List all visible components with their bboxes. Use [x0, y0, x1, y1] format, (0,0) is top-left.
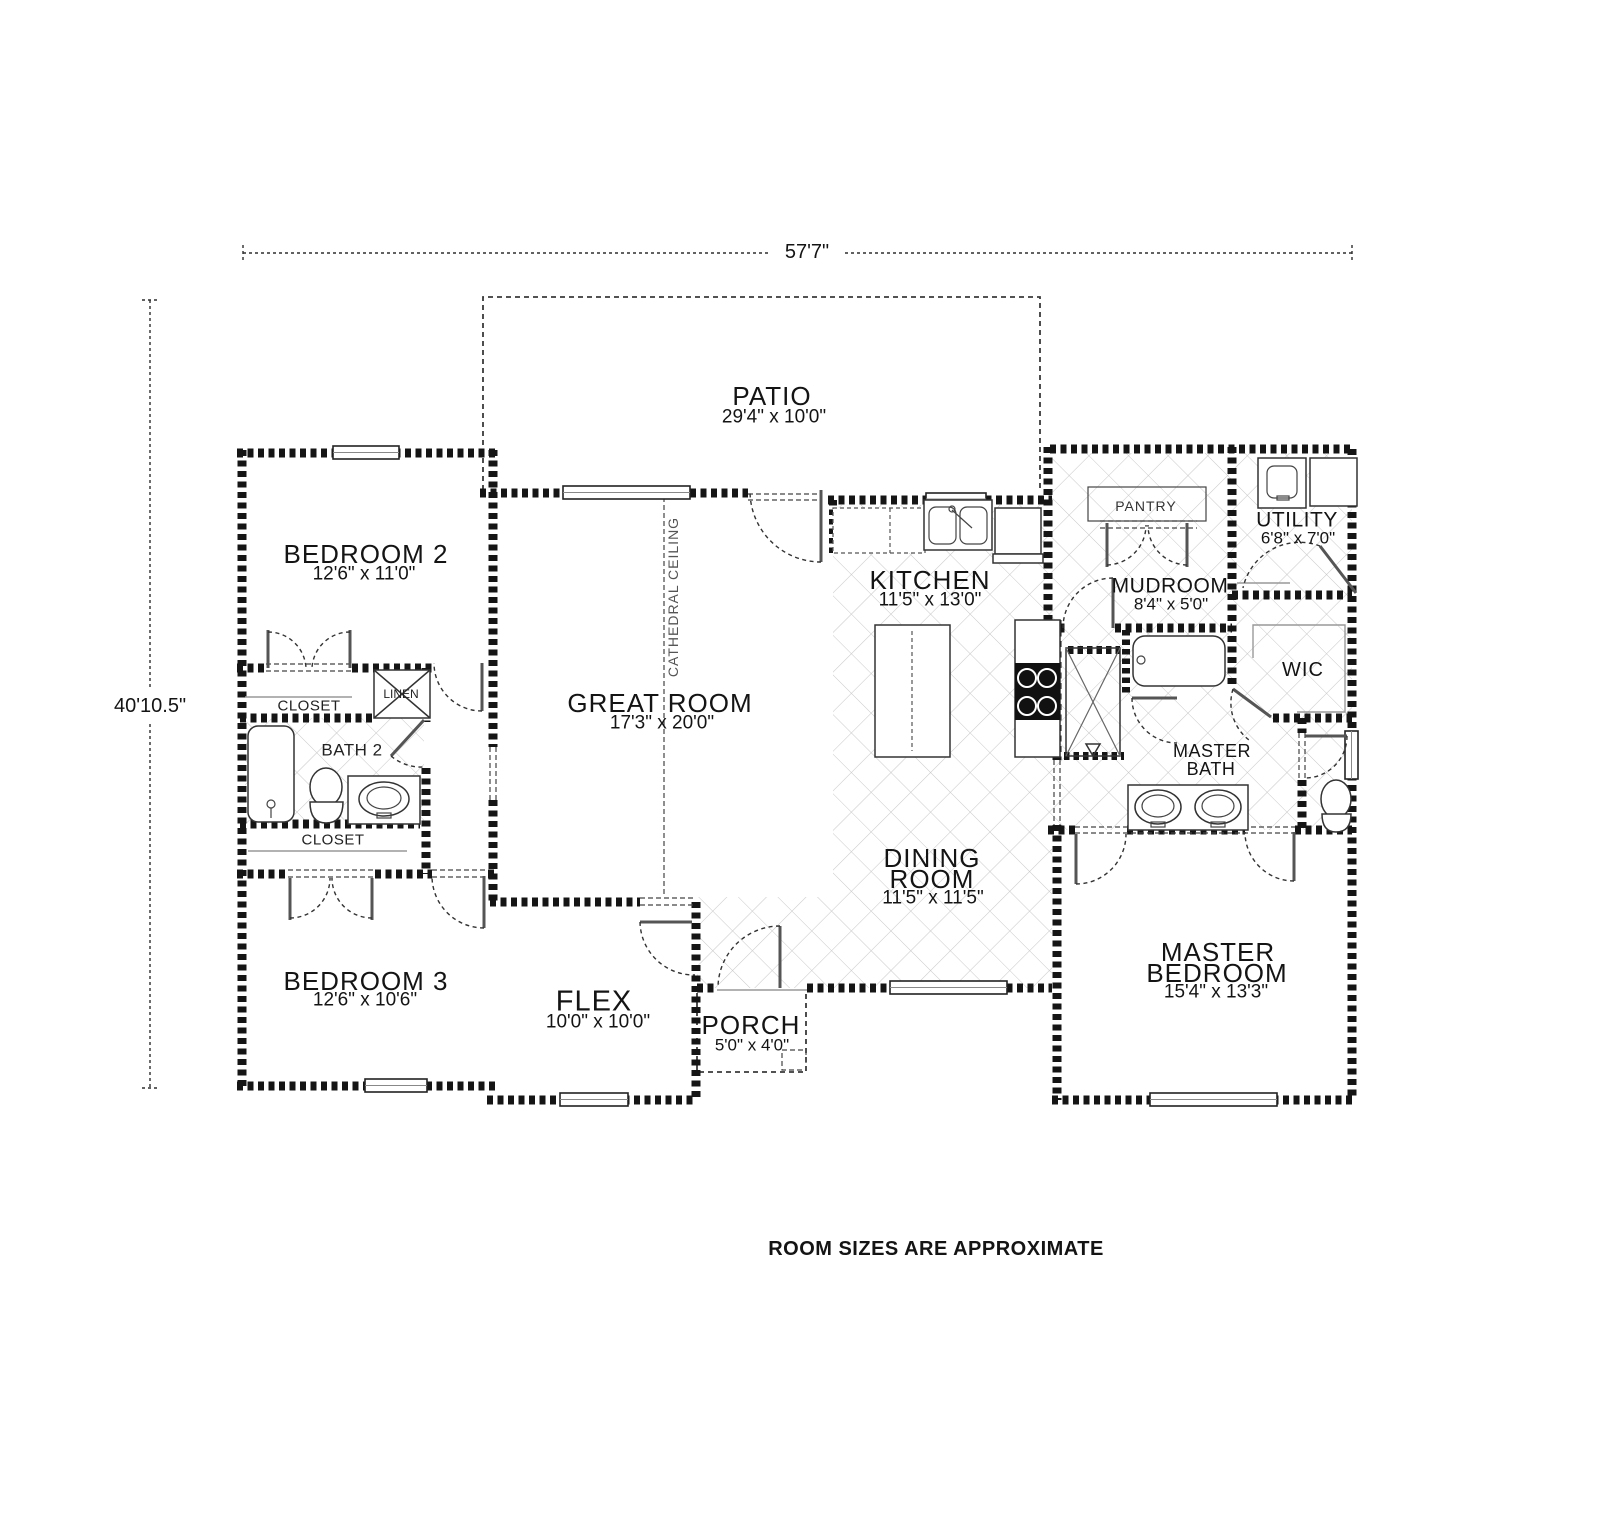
toilet: [310, 768, 342, 806]
cathedral-ceiling-label: CATHEDRAL CEILING: [666, 517, 680, 677]
master-bedroom-size: 15'4" x 13'3": [1164, 983, 1268, 1002]
door: [434, 663, 482, 711]
door: [1245, 832, 1294, 881]
mudroom-label: MUDROOM: [1112, 576, 1229, 597]
door: [1076, 834, 1126, 884]
window: [890, 981, 1007, 994]
floor-plan: 57'7" 40'10.5" PATIO 29'4" x 10'0" BEDRO…: [0, 0, 1600, 1516]
porch-size: 5'0" x 4'0": [715, 1037, 789, 1054]
overall-height-dimension: 40'10.5": [109, 696, 191, 716]
bedroom2-size: 12'6" x 11'0": [313, 565, 416, 584]
patio-size: 29'4" x 10'0": [722, 408, 826, 427]
great-room-size: 17'3" x 20'0": [610, 714, 714, 733]
utility-label: UTILITY: [1256, 510, 1338, 531]
master-bath-label-2: BATH: [1187, 760, 1236, 778]
door: [750, 490, 821, 562]
kitchen-size: 11'5" x 13'0": [879, 591, 982, 610]
flex-size: 10'0" x 10'0": [546, 1013, 650, 1032]
bedroom3-closet-label: CLOSET: [301, 833, 364, 848]
window: [365, 1079, 427, 1092]
bedroom2-closet-label: CLOSET: [277, 699, 340, 714]
pantry-label: PANTRY: [1115, 499, 1177, 513]
wic-label: WIC: [1282, 660, 1324, 680]
linen-label: LINEN: [383, 688, 418, 700]
door: [640, 922, 695, 975]
toilet: [1321, 780, 1351, 818]
door: [290, 878, 372, 920]
master-bath-label-1: MASTER: [1173, 742, 1251, 760]
mudroom-size: 8'4" x 5'0": [1134, 596, 1208, 613]
window: [1150, 1093, 1277, 1106]
plan-note: ROOM SIZES ARE APPROXIMATE: [768, 1239, 1104, 1259]
door: [432, 876, 484, 928]
patio-label: PATIO: [732, 383, 811, 409]
bedroom3-size: 12'6" x 10'6": [313, 991, 417, 1010]
window: [563, 486, 690, 499]
dryer: [1310, 458, 1357, 506]
floor-plan-linework: [0, 0, 1600, 1516]
utility-size: 6'8" x 7'0": [1261, 530, 1335, 547]
porch-label: PORCH: [702, 1012, 801, 1038]
window: [333, 446, 399, 459]
overall-width-dimension: 57'7": [780, 242, 834, 262]
bathtub: [1133, 636, 1225, 686]
dining-room-size: 11'5" x 11'5": [882, 889, 983, 908]
door: [268, 630, 350, 668]
bath2-label: BATH 2: [321, 742, 382, 759]
window: [560, 1093, 628, 1106]
counter: [833, 508, 925, 553]
refrigerator: [995, 508, 1041, 554]
